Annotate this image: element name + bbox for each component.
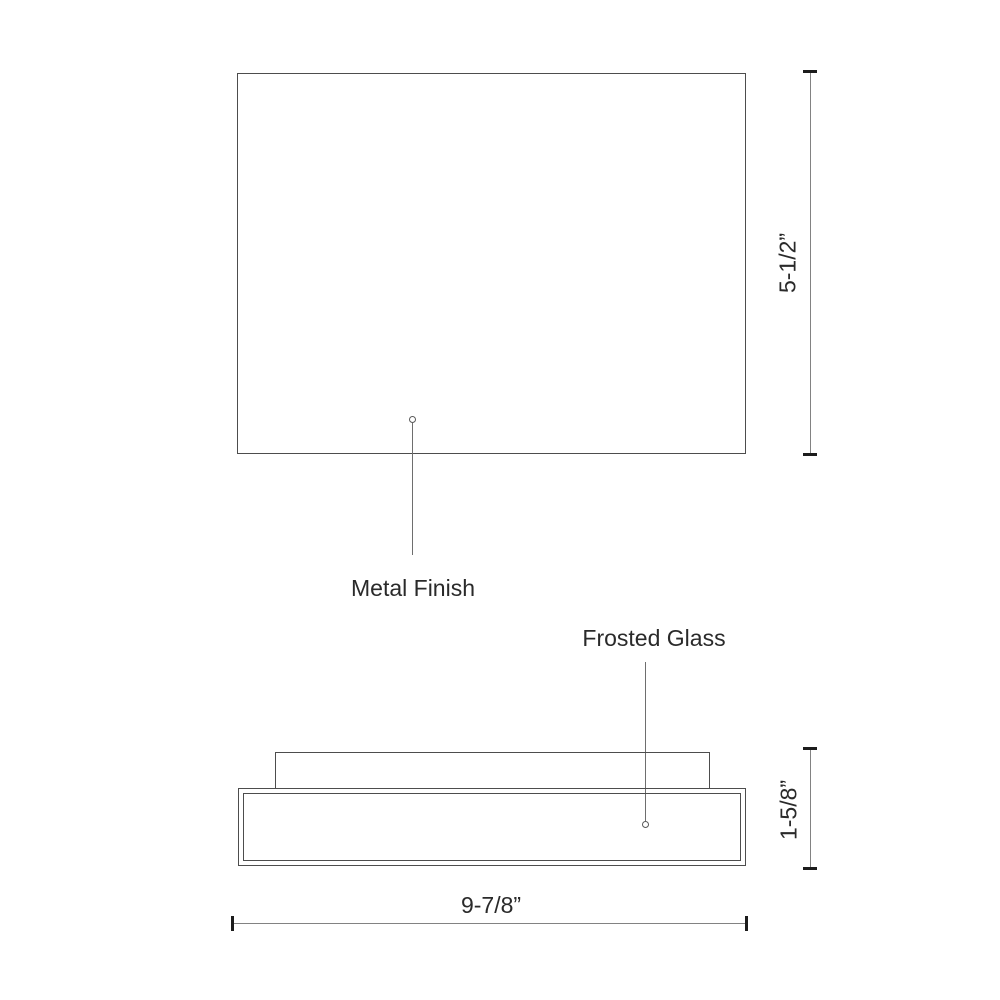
dim-profile-width-label: 9-7/8” [461, 893, 521, 918]
top-view-outline [237, 73, 746, 454]
dim-top-height-line [810, 71, 811, 455]
dim-profile-height-line [810, 748, 811, 869]
metal-finish-leader-dot [409, 416, 416, 423]
dim-profile-width-tick-left [231, 916, 234, 931]
dim-top-height-tick-bottom [803, 453, 817, 456]
drawing-canvas: Metal Finish 5-1/2” Frosted Glass 1-5/8”… [0, 0, 1000, 1000]
dim-profile-width-line [232, 923, 747, 924]
dim-profile-height-tick-top [803, 747, 817, 750]
metal-finish-label: Metal Finish [351, 576, 475, 601]
dim-top-height-label: 5-1/2” [775, 233, 800, 293]
frosted-glass-label: Frosted Glass [582, 626, 725, 651]
dim-profile-height-label: 1-5/8” [776, 780, 801, 840]
profile-mounting-plate-outline [275, 752, 710, 789]
metal-finish-leader-line [412, 423, 413, 555]
dim-top-height-tick-top [803, 70, 817, 73]
dim-profile-width-tick-right [745, 916, 748, 931]
dim-profile-height-tick-bottom [803, 867, 817, 870]
profile-body-inner-outline [243, 793, 741, 861]
